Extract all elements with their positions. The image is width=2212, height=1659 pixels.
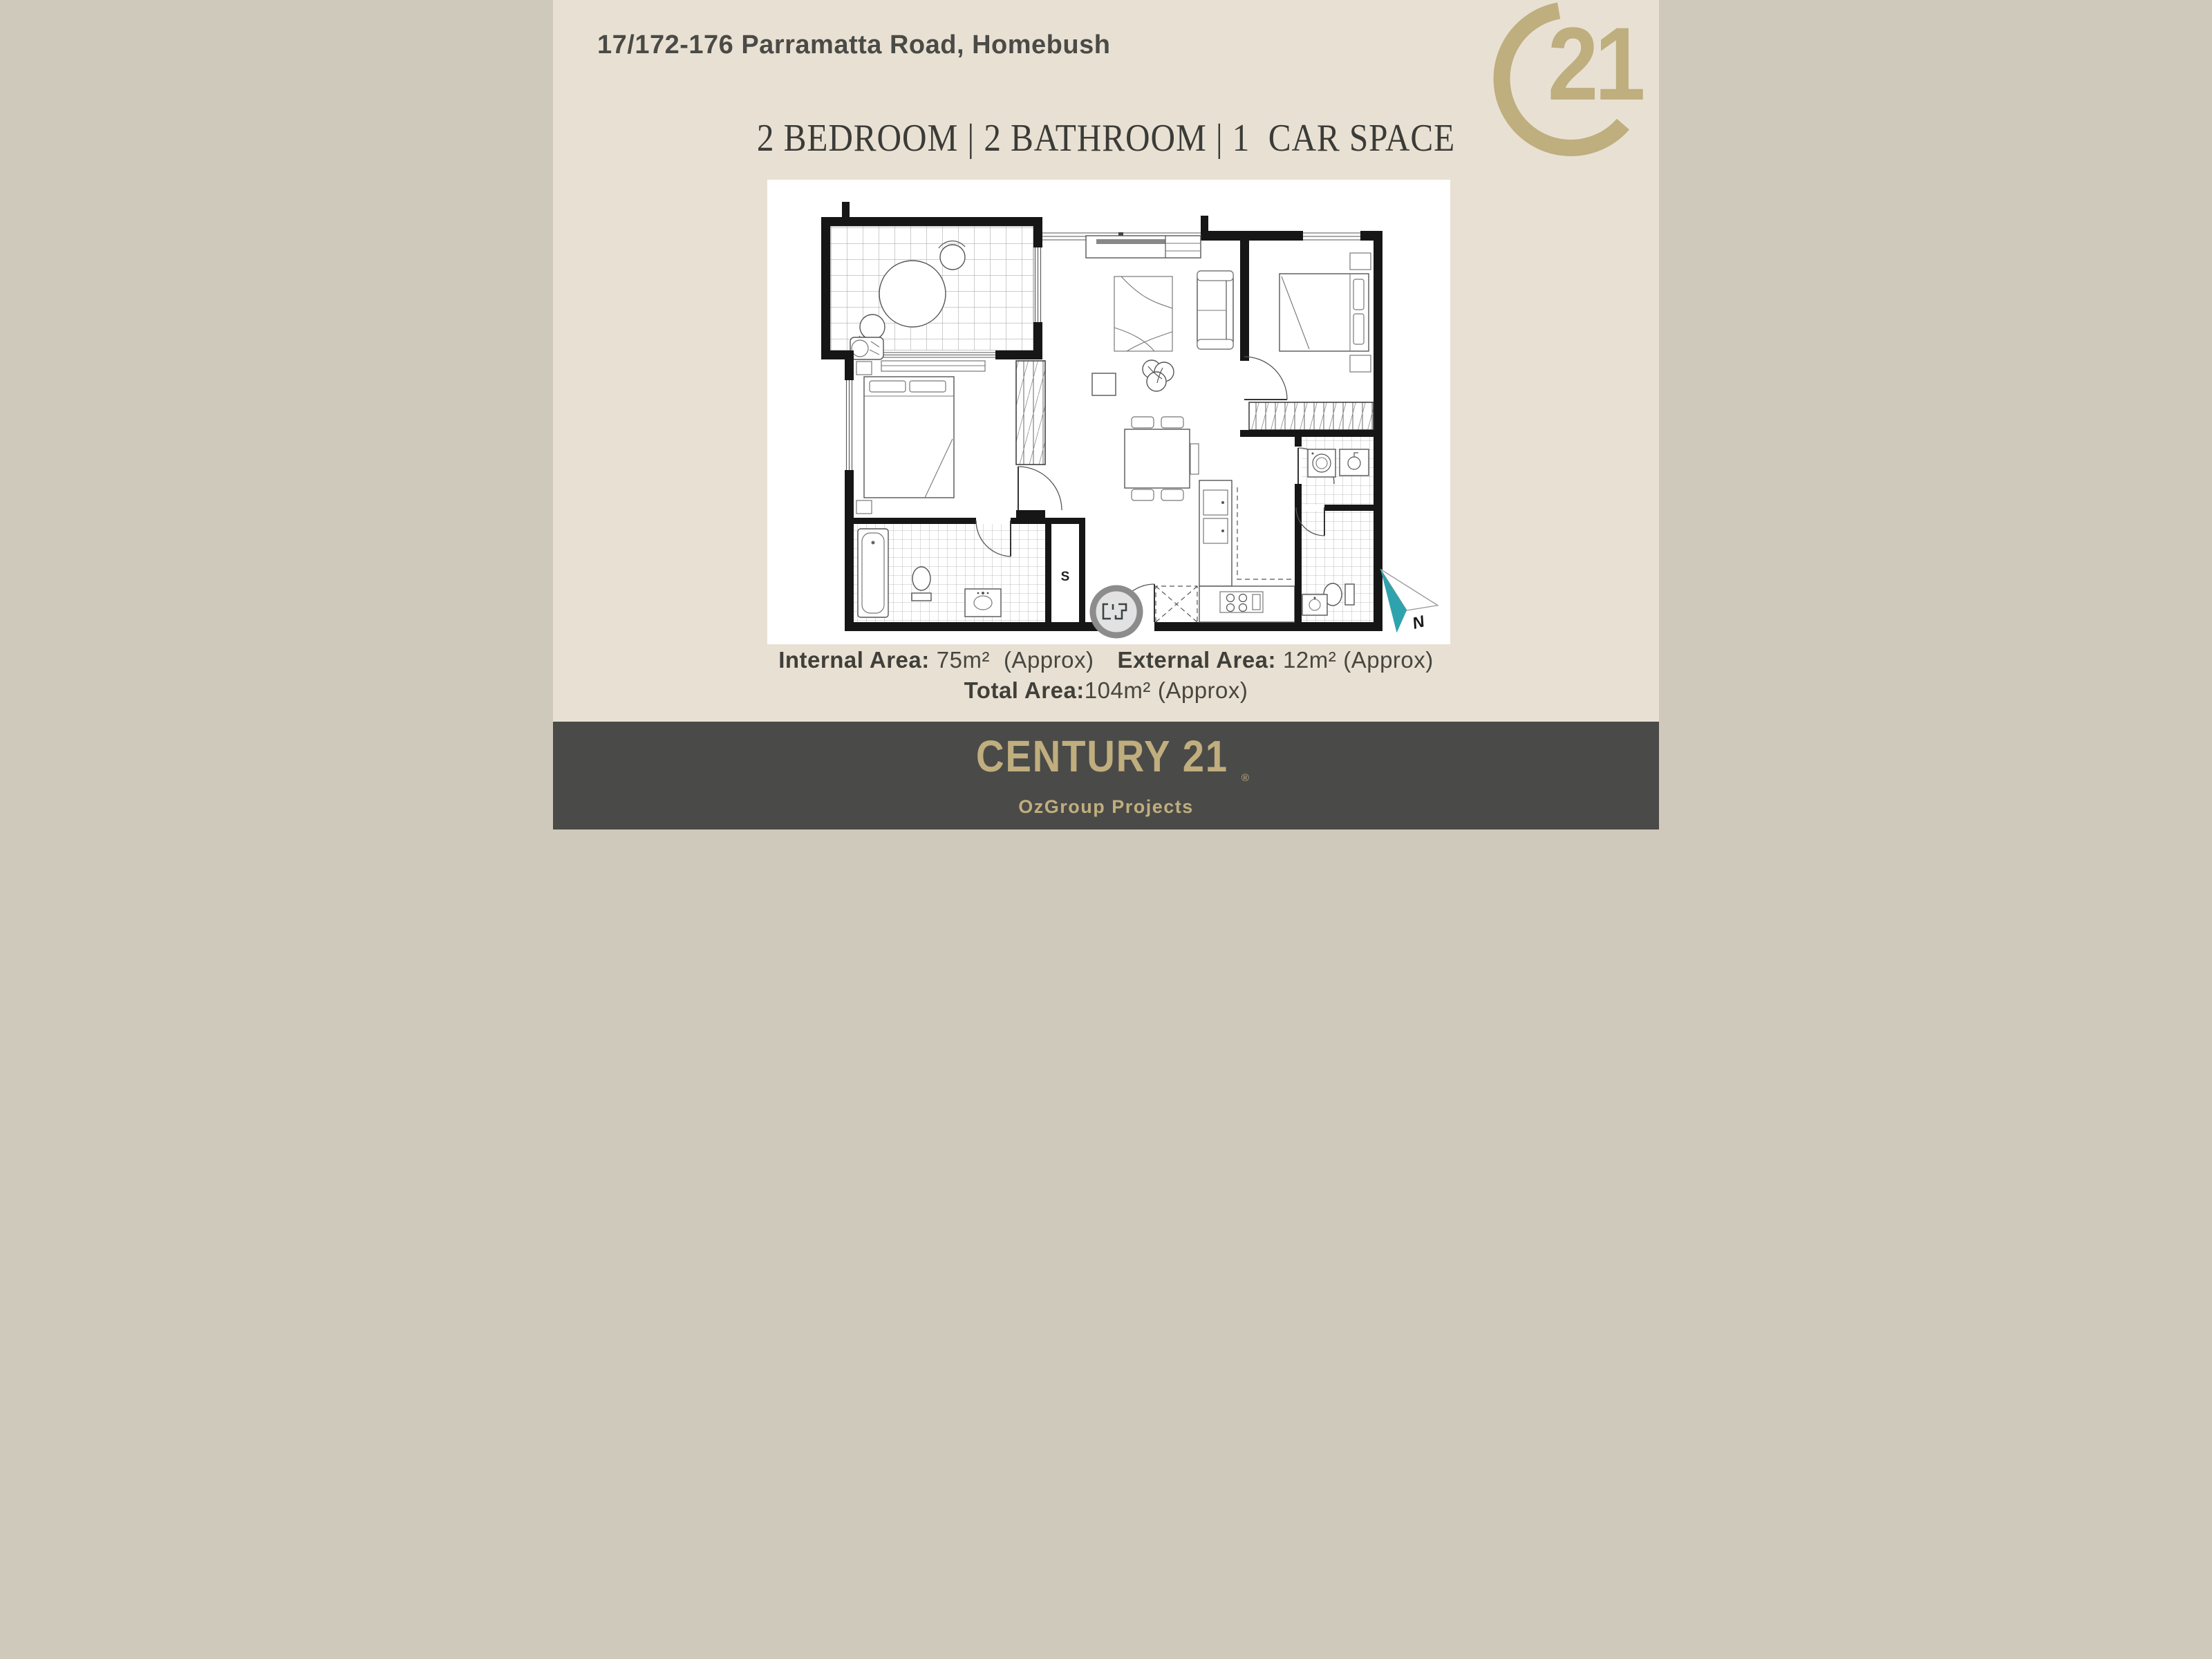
vanity-1 [965,589,1001,617]
balcony-lounge [850,337,883,359]
balcony-sliding-door [1035,247,1041,322]
bedroom2-wardrobe [1016,361,1045,465]
area-summary: Internal Area:75m²(Approx)External Area:… [553,645,1659,706]
sofa [1197,271,1233,349]
entry-marker [1093,588,1140,635]
footer: CENTURY 21® OzGroup Projects [553,722,1659,829]
floorplan-drawing: S [767,180,1450,644]
laundry-sink [1340,449,1369,476]
vanity-2 [1302,594,1327,615]
north-arrow: N [1380,570,1438,633]
floorplan-panel: S [767,180,1450,644]
feature-line: 2 BEDROOM | 2 BATHROOM | 1 CAR SPACE [553,116,1659,160]
bedroom2-bed [864,377,954,498]
internal-area-approx: (Approx) [1004,647,1094,673]
bedroom2-side-table [856,500,872,514]
tv-unit [1086,236,1201,258]
bedroom2-balcony-window [870,350,995,359]
bedroom-2 [856,361,1062,518]
storage-room: S [1045,518,1085,631]
bedroom1-side-table [1350,355,1371,372]
logo-registered-mark: ® [1636,91,1643,101]
washing-machine [1308,449,1335,477]
bedroom1-window [1303,233,1360,240]
area-line-1: Internal Area:75m²(Approx)External Area:… [553,645,1659,675]
balcony-table [879,261,946,327]
balcony [821,202,1042,359]
bathroom-1 [845,518,1045,622]
kitchen [1199,480,1295,622]
internal-area-label: Internal Area: [778,647,930,673]
total-area-approx: (Approx) [1158,677,1248,703]
bedroom1-door [1244,357,1287,400]
toilet-2 [1324,583,1354,606]
logo-number: 21 [1548,6,1643,122]
total-area-value: 104m² [1085,677,1151,703]
bedroom-1 [1240,241,1382,437]
storage-label: S [1061,570,1070,584]
bathroom-2 [1296,505,1374,622]
property-address: 17/172-176 Parramatta Road, Homebush [597,30,1110,60]
flyer-page: 17/172-176 Parramatta Road, Homebush 21 … [553,0,1659,829]
side-table [1092,373,1116,395]
footer-registered-mark: ® [1241,772,1249,784]
fridge-space [1156,586,1197,622]
external-area-approx: (Approx) [1343,647,1434,673]
internal-area-value: 75m² [937,647,990,673]
cooktop [1220,592,1263,612]
bedroom1-bed [1280,274,1369,351]
bedroom2-cabinet [881,361,985,371]
toilet-1 [912,567,931,601]
bedroom1-wardrobe [1249,402,1374,430]
rug [1114,276,1172,351]
footer-subbrand: OzGroup Projects [553,796,1659,818]
dining-set [1125,417,1199,500]
footer-brand: CENTURY 21 [976,734,1228,778]
external-area-label: External Area: [1117,647,1276,673]
bedroom2-door [1018,467,1062,510]
living-room [1086,236,1233,500]
external-area-value: 12m² [1283,647,1336,673]
north-label: N [1410,612,1427,632]
total-area-label: Total Area: [964,677,1085,703]
area-line-2: Total Area:104m²(Approx) [553,675,1659,706]
bedroom2-window [845,380,854,470]
bathtub [858,529,888,617]
bedroom2-side-table [856,362,872,375]
plant [1143,360,1174,391]
bedroom1-side-table [1350,253,1371,270]
